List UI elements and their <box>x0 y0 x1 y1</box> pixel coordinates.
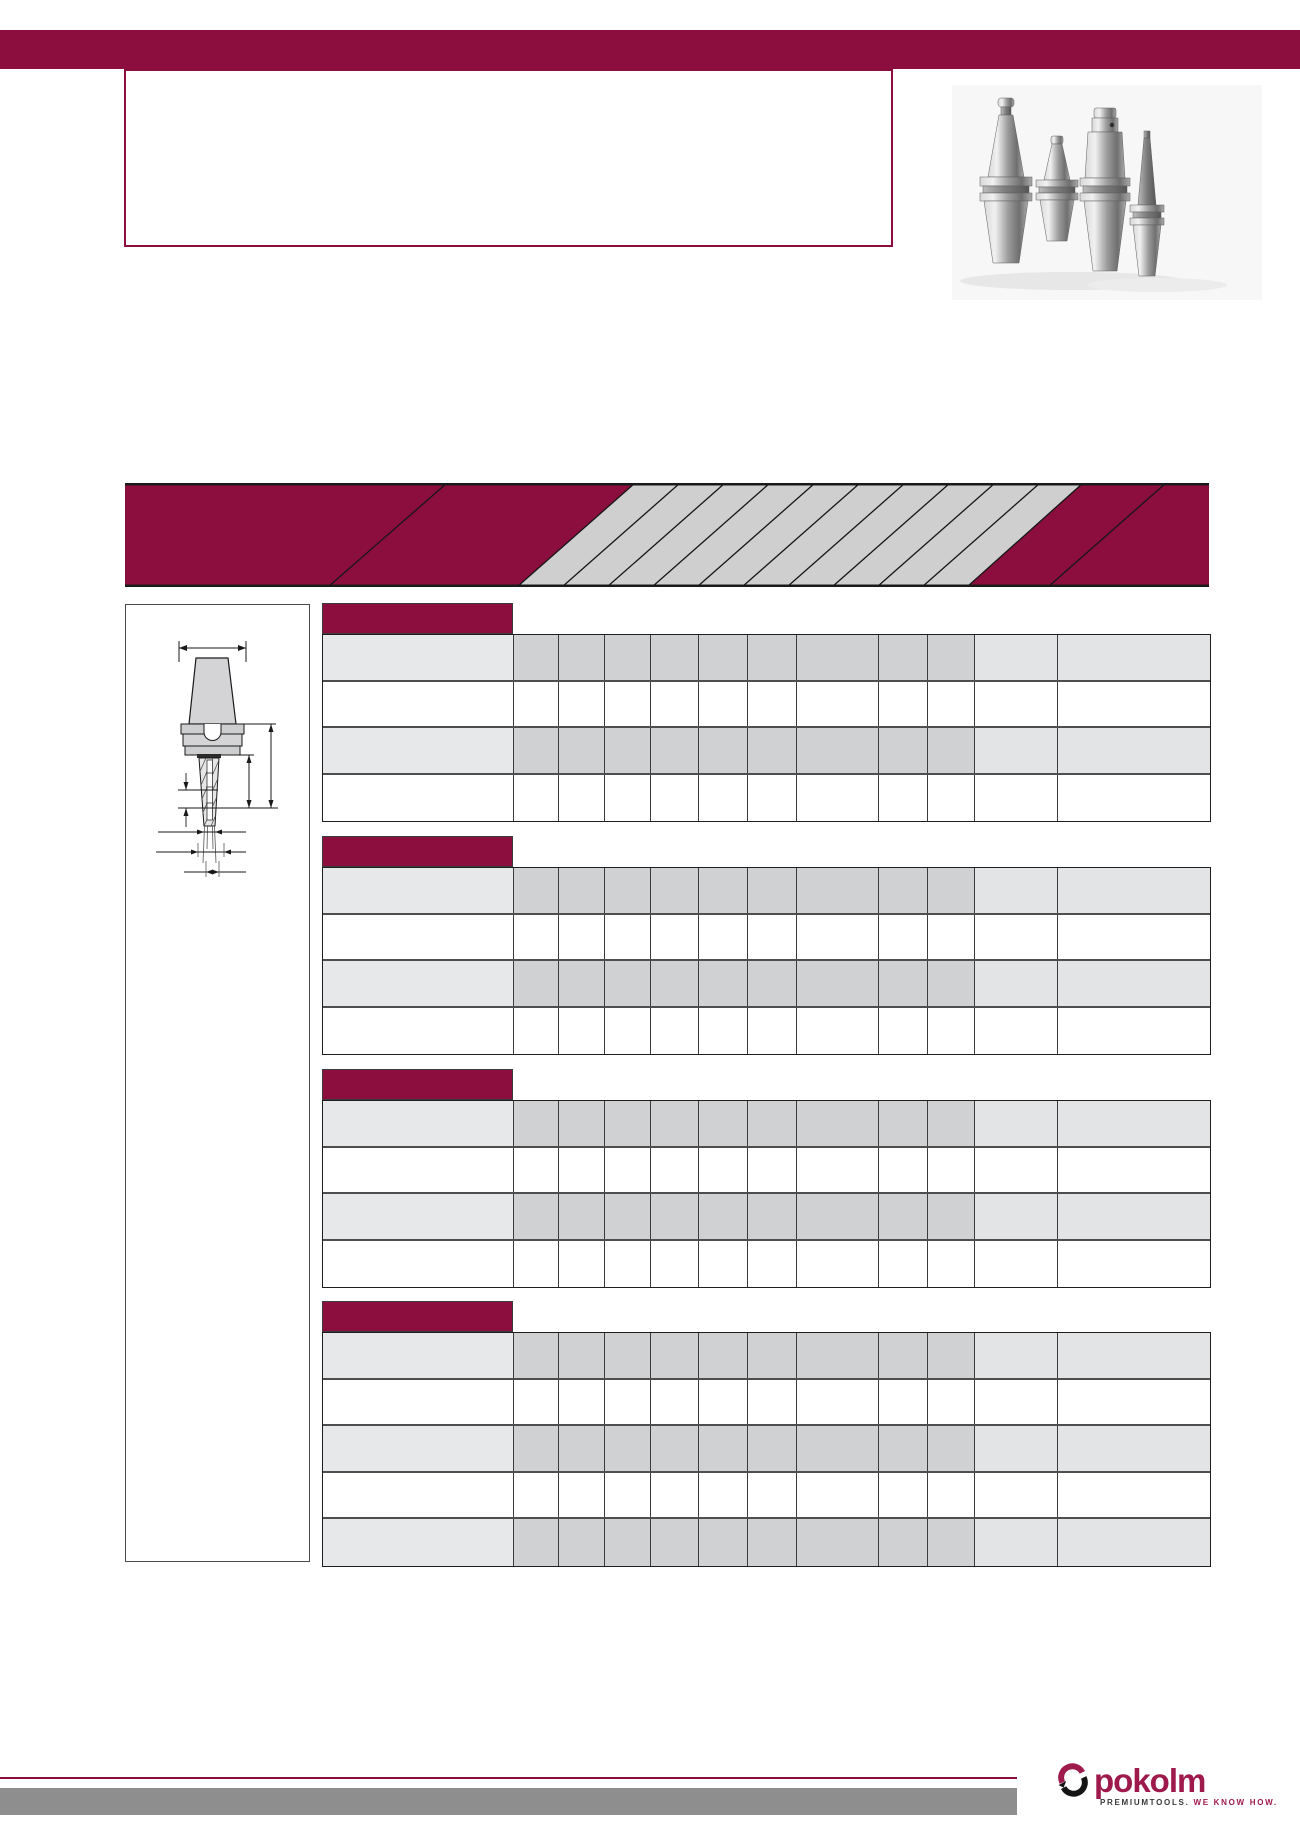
table-cell <box>797 775 879 822</box>
table-cell <box>605 1333 651 1378</box>
table-body <box>322 1100 1211 1288</box>
table-cell <box>559 1426 605 1471</box>
table-cell <box>699 1333 748 1378</box>
table-cell <box>559 1241 605 1288</box>
table-cell <box>651 635 699 680</box>
table-header-block <box>322 1069 513 1100</box>
table-cell <box>699 682 748 727</box>
table-row <box>323 1473 1210 1520</box>
table-cell <box>975 1380 1058 1425</box>
table-cell <box>928 1519 975 1566</box>
table-cell <box>605 915 651 960</box>
table-cell <box>514 1333 559 1378</box>
table-cell <box>975 1008 1058 1055</box>
table-row <box>323 728 1210 775</box>
table-cell <box>699 1148 748 1193</box>
table-cell <box>323 775 514 822</box>
table-cell <box>748 1008 797 1055</box>
table-cell <box>879 1008 928 1055</box>
table-cell <box>514 1008 559 1055</box>
table-row <box>323 1426 1210 1473</box>
table-cell <box>323 1194 514 1239</box>
table-row <box>323 635 1210 682</box>
table-cell <box>605 682 651 727</box>
table-cell <box>797 728 879 773</box>
table-cell <box>797 961 879 1006</box>
table-cell <box>514 1194 559 1239</box>
table-cell <box>323 635 514 680</box>
table-cell <box>928 961 975 1006</box>
table-cell <box>1058 1241 1210 1288</box>
tagline-accent: WE KNOW HOW. <box>1193 1798 1277 1807</box>
table-cell <box>879 915 928 960</box>
table-cell <box>323 868 514 913</box>
table-cell <box>323 961 514 1006</box>
table-cell <box>559 1380 605 1425</box>
pokolm-logo-mark-icon <box>1056 1763 1090 1797</box>
table-cell <box>748 1148 797 1193</box>
table-cell <box>748 728 797 773</box>
table-cell <box>651 1333 699 1378</box>
footer-rule <box>0 1777 1017 1779</box>
table-cell <box>797 1148 879 1193</box>
table-cell <box>605 1008 651 1055</box>
table-cell <box>1058 1333 1210 1378</box>
tagline-primary: PREMIUMTOOLS. <box>1100 1798 1190 1807</box>
table-cell <box>928 635 975 680</box>
table-cell <box>975 775 1058 822</box>
table-cell <box>699 1241 748 1288</box>
table-cell <box>928 868 975 913</box>
table-cell <box>605 1426 651 1471</box>
table-cell <box>975 1519 1058 1566</box>
table-cell <box>699 1426 748 1471</box>
table-cell <box>559 635 605 680</box>
table-cell <box>323 1473 514 1518</box>
table-cell <box>559 728 605 773</box>
table-cell <box>651 961 699 1006</box>
table-cell <box>797 1426 879 1471</box>
table-cell <box>1058 1101 1210 1146</box>
table-cell <box>748 775 797 822</box>
table-cell <box>514 1148 559 1193</box>
table-cell <box>797 1519 879 1566</box>
table-body <box>322 634 1211 822</box>
table-cell <box>559 961 605 1006</box>
table-cell <box>651 1426 699 1471</box>
table-cell <box>1058 915 1210 960</box>
top-accent-bar <box>0 30 1300 69</box>
table-cell <box>514 728 559 773</box>
table-cell <box>975 1333 1058 1378</box>
table-cell <box>797 1194 879 1239</box>
table-cell <box>879 1519 928 1566</box>
table-cell <box>605 1101 651 1146</box>
table-cell <box>879 961 928 1006</box>
table-body <box>322 867 1211 1055</box>
table-cell <box>559 915 605 960</box>
table-cell <box>514 961 559 1006</box>
table-cell <box>879 1101 928 1146</box>
table-cell <box>879 1241 928 1288</box>
table-cell <box>1058 1380 1210 1425</box>
table-cell <box>797 1008 879 1055</box>
table-cell <box>975 961 1058 1006</box>
table-cell <box>651 1101 699 1146</box>
table-cell <box>748 1333 797 1378</box>
tool-holders-image <box>952 85 1262 300</box>
catalog-page: pokolm PREMIUMTOOLS. WE KNOW HOW. <box>0 0 1300 1839</box>
table-cell <box>975 1148 1058 1193</box>
table-row <box>323 1148 1210 1195</box>
table-cell <box>323 1101 514 1146</box>
table-cell <box>797 868 879 913</box>
table-cell <box>605 868 651 913</box>
table-cell <box>748 1426 797 1471</box>
table-row <box>323 868 1210 915</box>
logo-tagline: PREMIUMTOOLS. WE KNOW HOW. <box>1100 1799 1286 1807</box>
table-cell <box>514 1473 559 1518</box>
table-cell <box>879 1148 928 1193</box>
table-cell <box>1058 1008 1210 1055</box>
table-cell <box>699 1519 748 1566</box>
table-row <box>323 961 1210 1008</box>
table-cell <box>797 1101 879 1146</box>
table-cell <box>748 868 797 913</box>
table-cell <box>975 868 1058 913</box>
table-cell <box>748 915 797 960</box>
table-cell <box>1058 682 1210 727</box>
table-cell <box>514 1426 559 1471</box>
table-cell <box>797 682 879 727</box>
table-cell <box>605 1241 651 1288</box>
table-cell <box>323 682 514 727</box>
table-cell <box>323 915 514 960</box>
table-cell <box>651 1148 699 1193</box>
table-cell <box>748 1101 797 1146</box>
table-cell <box>514 1241 559 1288</box>
table-cell <box>651 868 699 913</box>
table-cell <box>975 1241 1058 1288</box>
diagonal-stripe-banner-art <box>125 483 1209 587</box>
table-cell <box>514 915 559 960</box>
table-cell <box>559 1194 605 1239</box>
table-cell <box>928 775 975 822</box>
table-cell <box>559 1148 605 1193</box>
table-row <box>323 1194 1210 1241</box>
table-cell <box>651 1008 699 1055</box>
table-cell <box>928 915 975 960</box>
table-cell <box>699 1194 748 1239</box>
table-cell <box>797 1473 879 1518</box>
table-cell <box>323 1008 514 1055</box>
table-cell <box>514 868 559 913</box>
table-cell <box>879 728 928 773</box>
table-cell <box>928 728 975 773</box>
table-row <box>323 1241 1210 1288</box>
table-cell <box>699 635 748 680</box>
table-cell <box>514 1519 559 1566</box>
table-cell <box>559 1519 605 1566</box>
table-cell <box>559 682 605 727</box>
table-cell <box>605 961 651 1006</box>
table-cell <box>323 728 514 773</box>
table-cell <box>605 635 651 680</box>
table-cell <box>699 1008 748 1055</box>
table-cell <box>651 1380 699 1425</box>
table-row <box>323 775 1210 822</box>
table-cell <box>928 682 975 727</box>
table-cell <box>748 1473 797 1518</box>
table-cell <box>928 1101 975 1146</box>
table-cell <box>879 1426 928 1471</box>
table-cell <box>559 775 605 822</box>
table-cell <box>975 1101 1058 1146</box>
table-cell <box>928 1148 975 1193</box>
table-cell <box>559 1008 605 1055</box>
table-cell <box>928 1333 975 1378</box>
category-banner <box>125 483 1209 587</box>
table-cell <box>514 635 559 680</box>
table-cell <box>928 1194 975 1239</box>
table-cell <box>748 1241 797 1288</box>
table-cell <box>1058 635 1210 680</box>
table-cell <box>651 915 699 960</box>
table-cell <box>1058 1194 1210 1239</box>
table-cell <box>651 682 699 727</box>
table-cell <box>651 728 699 773</box>
table-cell <box>975 1194 1058 1239</box>
table-cell <box>605 1519 651 1566</box>
table-cell <box>605 1380 651 1425</box>
table-cell <box>879 1194 928 1239</box>
table-cell <box>928 1241 975 1288</box>
table-cell <box>651 775 699 822</box>
table-cell <box>605 1473 651 1518</box>
table-cell <box>559 868 605 913</box>
table-cell <box>699 775 748 822</box>
table-cell <box>605 728 651 773</box>
table-cell <box>1058 868 1210 913</box>
table-row <box>323 1008 1210 1055</box>
table-cell <box>975 682 1058 727</box>
product-photo <box>952 85 1262 300</box>
table-cell <box>879 1473 928 1518</box>
footer-bar <box>0 1788 1017 1815</box>
table-cell <box>1058 1148 1210 1193</box>
table-cell <box>323 1333 514 1378</box>
table-cell <box>975 728 1058 773</box>
table-cell <box>559 1333 605 1378</box>
table-cell <box>699 915 748 960</box>
table-cell <box>748 961 797 1006</box>
table-cell <box>879 775 928 822</box>
table-cell <box>323 1148 514 1193</box>
table-cell <box>323 1241 514 1288</box>
table-cell <box>605 1194 651 1239</box>
table-cell <box>879 868 928 913</box>
table-header-block <box>322 836 513 867</box>
tool-holder-dimension-drawing <box>126 605 309 1561</box>
table-cell <box>699 1473 748 1518</box>
table-cell <box>1058 728 1210 773</box>
table-cell <box>879 1380 928 1425</box>
table-cell <box>879 682 928 727</box>
table-cell <box>323 1426 514 1471</box>
table-cell <box>928 1473 975 1518</box>
drawing-panel <box>125 604 310 1562</box>
table-cell <box>797 635 879 680</box>
table-header-block <box>322 603 513 634</box>
table-row <box>323 1519 1210 1566</box>
table-cell <box>975 1426 1058 1471</box>
table-cell <box>699 961 748 1006</box>
table-cell <box>323 1519 514 1566</box>
table-header-block <box>322 1301 513 1332</box>
table-cell <box>651 1473 699 1518</box>
table-cell <box>797 915 879 960</box>
table-cell <box>699 868 748 913</box>
title-box <box>124 69 893 247</box>
table-cell <box>879 1333 928 1378</box>
table-cell <box>651 1241 699 1288</box>
table-cell <box>1058 1519 1210 1566</box>
table-row <box>323 1333 1210 1380</box>
table-cell <box>1058 775 1210 822</box>
table-cell <box>699 1380 748 1425</box>
table-cell <box>975 915 1058 960</box>
table-cell <box>651 1519 699 1566</box>
table-cell <box>748 1380 797 1425</box>
logo-text: pokolm <box>1094 1764 1205 1797</box>
table-cell <box>1058 961 1210 1006</box>
table-cell <box>559 1101 605 1146</box>
table-cell <box>748 1194 797 1239</box>
table-cell <box>748 1519 797 1566</box>
table-cell <box>514 775 559 822</box>
table-cell <box>928 1380 975 1425</box>
table-cell <box>651 1194 699 1239</box>
table-cell <box>514 1101 559 1146</box>
table-cell <box>748 682 797 727</box>
table-cell <box>514 682 559 727</box>
table-body <box>322 1332 1211 1567</box>
table-cell <box>879 635 928 680</box>
table-row <box>323 1380 1210 1427</box>
table-row <box>323 682 1210 729</box>
table-cell <box>1058 1426 1210 1471</box>
table-cell <box>797 1380 879 1425</box>
table-cell <box>975 635 1058 680</box>
table-cell <box>699 1101 748 1146</box>
table-row <box>323 915 1210 962</box>
table-cell <box>928 1008 975 1055</box>
table-cell <box>975 1473 1058 1518</box>
table-cell <box>797 1333 879 1378</box>
table-row <box>323 1101 1210 1148</box>
pokolm-logo: pokolm PREMIUMTOOLS. WE KNOW HOW. <box>1056 1763 1286 1807</box>
table-cell <box>1058 1473 1210 1518</box>
table-cell <box>699 728 748 773</box>
table-cell <box>928 1426 975 1471</box>
table-cell <box>797 1241 879 1288</box>
table-cell <box>559 1473 605 1518</box>
table-cell <box>323 1380 514 1425</box>
table-cell <box>514 1380 559 1425</box>
table-cell <box>605 775 651 822</box>
table-cell <box>605 1148 651 1193</box>
table-cell <box>748 635 797 680</box>
